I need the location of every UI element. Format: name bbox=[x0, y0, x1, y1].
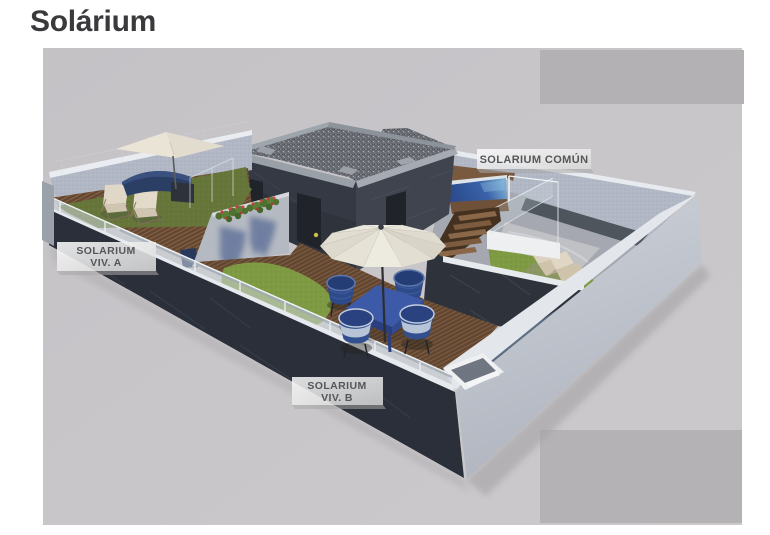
svg-text:SOLARIUM: SOLARIUM bbox=[307, 380, 366, 392]
svg-text:Solárium: Solárium bbox=[30, 5, 156, 38]
svg-text:SOLARIUM COMÚN: SOLARIUM COMÚN bbox=[480, 153, 589, 166]
svg-text:SOLARIUM: SOLARIUM bbox=[76, 245, 135, 257]
svg-text:VIV. B: VIV. B bbox=[321, 392, 353, 404]
svg-text:VIV. A: VIV. A bbox=[90, 257, 121, 269]
